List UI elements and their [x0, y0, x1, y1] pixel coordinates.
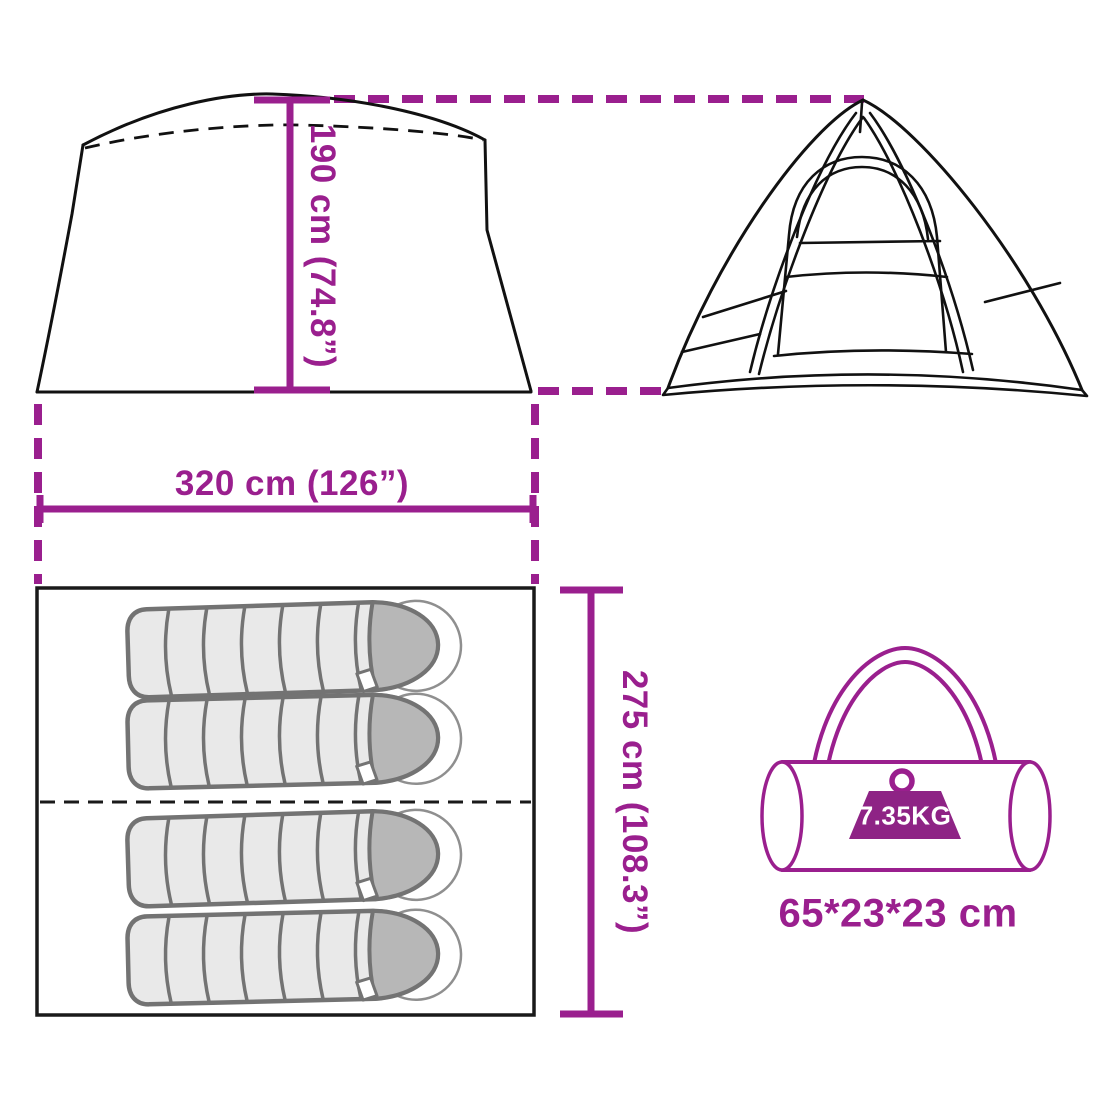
- tent-front-outer-right: [863, 100, 1082, 390]
- height-label: 190 cm (74.8”): [302, 124, 342, 368]
- dimension-diagram: 190 cm (74.8”) 320 cm (126”) 275 cm (108…: [0, 0, 1120, 1120]
- carry-bag-end-right: [1010, 762, 1050, 870]
- tent-front-pole-left-2: [759, 117, 863, 374]
- tent-front-right-seam: [985, 283, 1060, 302]
- packed-size-label: 65*23*23 cm: [778, 892, 1017, 937]
- tent-front-skirt: [663, 374, 1087, 396]
- width-label: 320 cm (126”): [175, 464, 409, 504]
- tent-front-door-bottom: [774, 350, 972, 356]
- tent-side-rear-edge: [85, 125, 483, 148]
- tent-front-door-band: [786, 273, 947, 278]
- tent-front-left-seam-2: [682, 334, 760, 352]
- tent-side-view: [37, 94, 531, 392]
- tent-front-left-seam: [703, 291, 786, 317]
- packed-weight-label: 7.35KG: [859, 801, 952, 832]
- carry-bag-end-left: [762, 762, 802, 870]
- depth-label: 275 cm (108.3”): [614, 670, 654, 934]
- carry-bag: [762, 648, 1050, 870]
- weight-hook-icon: [892, 771, 912, 791]
- tent-front-apex-seam: [860, 103, 862, 132]
- tent-front-view: [663, 100, 1087, 396]
- tent-side-left-edge: [37, 145, 83, 392]
- diagram-canvas: [0, 0, 1120, 1120]
- floor-plan-top-view: [37, 588, 534, 1015]
- tent-front-door-arch: [778, 157, 946, 354]
- tent-side-right-edge: [485, 140, 531, 391]
- tent-front-pole-right-2: [864, 118, 963, 372]
- tent-front-window-sill: [800, 241, 940, 243]
